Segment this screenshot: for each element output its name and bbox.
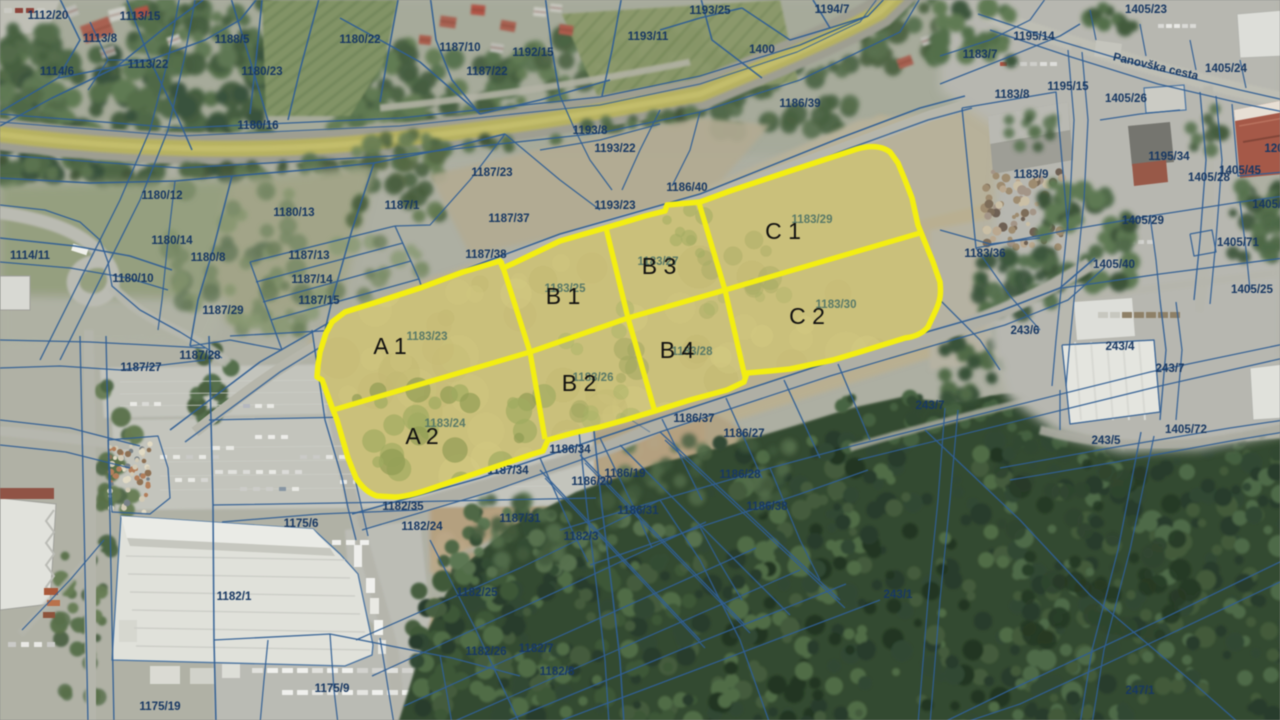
svg-text:1180/14: 1180/14 (151, 234, 193, 247)
svg-text:C 2: C 2 (789, 303, 825, 329)
svg-text:B 1: B 1 (546, 283, 581, 309)
svg-text:1405/26: 1405/26 (1105, 92, 1147, 105)
svg-text:A 2: A 2 (405, 423, 438, 449)
svg-text:1186/27: 1186/27 (723, 427, 764, 440)
svg-text:1180/10: 1180/10 (112, 272, 153, 285)
svg-text:1186/37: 1186/37 (673, 412, 714, 425)
svg-text:1187/28: 1187/28 (179, 349, 221, 362)
svg-text:1114/6: 1114/6 (40, 65, 75, 78)
svg-text:1187/31: 1187/31 (499, 512, 541, 525)
svg-text:1182/26: 1182/26 (465, 645, 507, 658)
svg-text:C 1: C 1 (765, 218, 801, 244)
svg-text:1187/29: 1187/29 (202, 304, 244, 317)
svg-text:1175/6: 1175/6 (284, 517, 319, 530)
svg-text:1183/23: 1183/23 (407, 331, 448, 343)
svg-text:1186/38: 1186/38 (746, 500, 788, 513)
svg-text:1180/8: 1180/8 (191, 251, 226, 264)
svg-text:1175/9: 1175/9 (315, 682, 350, 695)
svg-text:1186/19: 1186/19 (604, 467, 646, 480)
svg-text:1187/27: 1187/27 (120, 361, 161, 374)
svg-text:1186/31: 1186/31 (617, 504, 659, 517)
svg-text:1193/22: 1193/22 (594, 142, 635, 155)
svg-text:1405/71: 1405/71 (1217, 236, 1259, 249)
svg-text:1186/28: 1186/28 (719, 468, 761, 481)
svg-text:A 1: A 1 (373, 333, 406, 359)
svg-text:243/4: 243/4 (1105, 340, 1135, 353)
svg-text:1186/39: 1186/39 (779, 97, 821, 110)
svg-text:1405/23: 1405/23 (1125, 3, 1167, 16)
svg-text:1182/8: 1182/8 (540, 665, 575, 678)
svg-text:243/7: 243/7 (1155, 362, 1184, 375)
svg-text:1183/7: 1183/7 (963, 48, 998, 61)
svg-text:1194/7: 1194/7 (815, 3, 850, 16)
svg-text:1187/37: 1187/37 (488, 212, 529, 225)
svg-text:243/6: 243/6 (1010, 324, 1040, 337)
svg-text:1186/34: 1186/34 (549, 443, 591, 456)
svg-text:1175/19: 1175/19 (139, 700, 181, 713)
svg-text:1114/11: 1114/11 (10, 249, 51, 262)
svg-text:1187/15: 1187/15 (298, 294, 340, 307)
svg-text:B 4: B 4 (660, 337, 695, 363)
svg-text:1193/11: 1193/11 (628, 30, 669, 43)
svg-text:1405/25: 1405/25 (1231, 283, 1273, 296)
svg-text:1195/34: 1195/34 (1148, 150, 1190, 163)
svg-text:1183/8: 1183/8 (995, 88, 1030, 101)
svg-text:1182/25: 1182/25 (456, 586, 498, 599)
svg-text:1192/15: 1192/15 (512, 46, 554, 59)
svg-text:1183/9: 1183/9 (1014, 168, 1049, 181)
svg-text:1193/8: 1193/8 (573, 124, 608, 137)
svg-text:1405/29: 1405/29 (1122, 214, 1164, 227)
svg-text:1182/24: 1182/24 (401, 520, 443, 533)
svg-text:1183/36: 1183/36 (964, 247, 1006, 260)
svg-text:120: 120 (1264, 142, 1280, 155)
svg-text:1113/8: 1113/8 (83, 32, 118, 45)
svg-text:243/1: 243/1 (883, 588, 913, 601)
svg-text:1187/10: 1187/10 (439, 41, 480, 54)
svg-text:1182/3: 1182/3 (564, 530, 599, 543)
svg-text:243/7: 243/7 (915, 399, 944, 412)
svg-text:1405/45: 1405/45 (1219, 164, 1261, 177)
svg-text:1180/12: 1180/12 (141, 189, 182, 202)
svg-text:1186/40: 1186/40 (666, 181, 707, 194)
svg-text:B 2: B 2 (562, 370, 597, 396)
svg-text:1405/24: 1405/24 (1205, 62, 1247, 75)
svg-text:1405/4: 1405/4 (1252, 198, 1280, 211)
svg-text:1195/15: 1195/15 (1047, 80, 1089, 93)
svg-text:B 3: B 3 (642, 253, 677, 279)
svg-text:1182/1: 1182/1 (217, 590, 252, 603)
svg-text:1187/23: 1187/23 (471, 166, 513, 179)
svg-text:1180/22: 1180/22 (339, 33, 380, 46)
svg-text:1182/7: 1182/7 (519, 642, 554, 655)
svg-text:1112/20: 1112/20 (28, 9, 69, 22)
svg-text:1187/14: 1187/14 (291, 273, 333, 286)
svg-text:1405/72: 1405/72 (1165, 423, 1207, 436)
svg-text:1187/1: 1187/1 (385, 199, 420, 212)
svg-text:1195/14: 1195/14 (1013, 30, 1055, 43)
svg-text:1180/13: 1180/13 (273, 206, 315, 219)
svg-text:1187/13: 1187/13 (288, 249, 330, 262)
svg-text:1180/16: 1180/16 (237, 119, 279, 132)
svg-text:1180/23: 1180/23 (241, 65, 283, 78)
svg-text:243/5: 243/5 (1091, 434, 1121, 447)
svg-text:1188/5: 1188/5 (215, 33, 250, 46)
svg-text:1187/22: 1187/22 (466, 65, 507, 78)
svg-text:1193/25: 1193/25 (689, 4, 731, 17)
svg-text:1405/40: 1405/40 (1093, 258, 1135, 271)
svg-text:247/1: 247/1 (1125, 684, 1155, 697)
svg-text:1400: 1400 (749, 43, 775, 56)
svg-text:1193/23: 1193/23 (594, 199, 636, 212)
svg-text:1113/15: 1113/15 (120, 10, 161, 23)
svg-text:1113/22: 1113/22 (128, 58, 169, 71)
svg-text:1182/35: 1182/35 (382, 500, 424, 513)
